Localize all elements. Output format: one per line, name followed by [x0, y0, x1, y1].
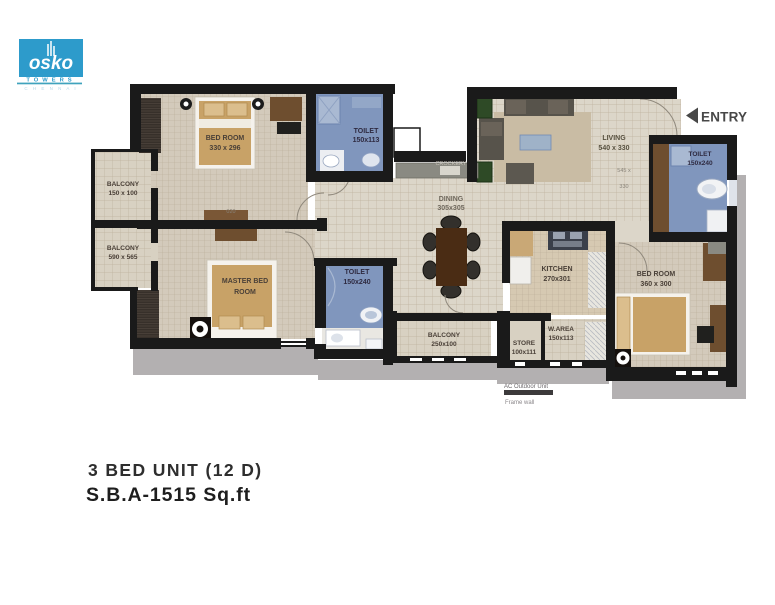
svg-text:020: 020: [226, 209, 235, 215]
svg-text:330: 330: [619, 184, 628, 190]
svg-text:S.B.A-1515 Sq.ft: S.B.A-1515 Sq.ft: [86, 484, 251, 506]
svg-text:BALCONY: BALCONY: [107, 245, 140, 252]
svg-text:305x305: 305x305: [437, 205, 464, 212]
svg-text:270x301: 270x301: [543, 276, 570, 283]
svg-text:250x100: 250x100: [431, 341, 457, 348]
svg-text:150x113: 150x113: [549, 335, 574, 342]
svg-text:TOILET: TOILET: [354, 128, 379, 135]
svg-text:BALCONY: BALCONY: [428, 332, 461, 339]
svg-text:TOILET: TOILET: [689, 151, 712, 158]
svg-text:STORE: STORE: [513, 340, 536, 347]
svg-text:150x240: 150x240: [687, 160, 713, 167]
svg-text:ENTRY: ENTRY: [701, 110, 747, 125]
svg-text:C H E N N A I: C H E N N A I: [24, 86, 77, 91]
svg-text:AC Outdoor Unit: AC Outdoor Unit: [504, 384, 548, 390]
svg-text:LIVING: LIVING: [602, 135, 626, 142]
svg-text:ROOM: ROOM: [234, 289, 256, 296]
svg-text:BALCONY: BALCONY: [107, 181, 140, 188]
svg-text:150x240: 150x240: [343, 279, 370, 286]
svg-text:330 x 296: 330 x 296: [209, 145, 240, 152]
svg-text:545 x: 545 x: [617, 168, 631, 174]
svg-text:Frame wall: Frame wall: [505, 400, 534, 406]
svg-text:540 x 330: 540 x 330: [598, 145, 629, 152]
svg-text:150x113: 150x113: [353, 137, 380, 144]
svg-text:BED ROOM: BED ROOM: [637, 271, 676, 278]
svg-text:360 x 300: 360 x 300: [640, 281, 671, 288]
svg-text:590 x 565: 590 x 565: [109, 254, 138, 261]
svg-text:BED ROOM: BED ROOM: [206, 135, 245, 142]
svg-text:3 BED UNIT (12 D): 3 BED UNIT (12 D): [88, 460, 263, 480]
svg-text:osko: osko: [29, 53, 73, 74]
svg-text:TOILET: TOILET: [345, 269, 370, 276]
svg-text:DINING: DINING: [439, 196, 464, 203]
svg-text:150 x 100: 150 x 100: [109, 190, 138, 197]
svg-text:100x111: 100x111: [512, 349, 537, 356]
svg-text:MASTER BED: MASTER BED: [222, 278, 268, 285]
svg-text:KITCHEN: KITCHEN: [541, 266, 572, 273]
svg-text:CROCKERY: CROCKERY: [435, 161, 466, 167]
svg-text:W.AREA: W.AREA: [548, 326, 574, 333]
